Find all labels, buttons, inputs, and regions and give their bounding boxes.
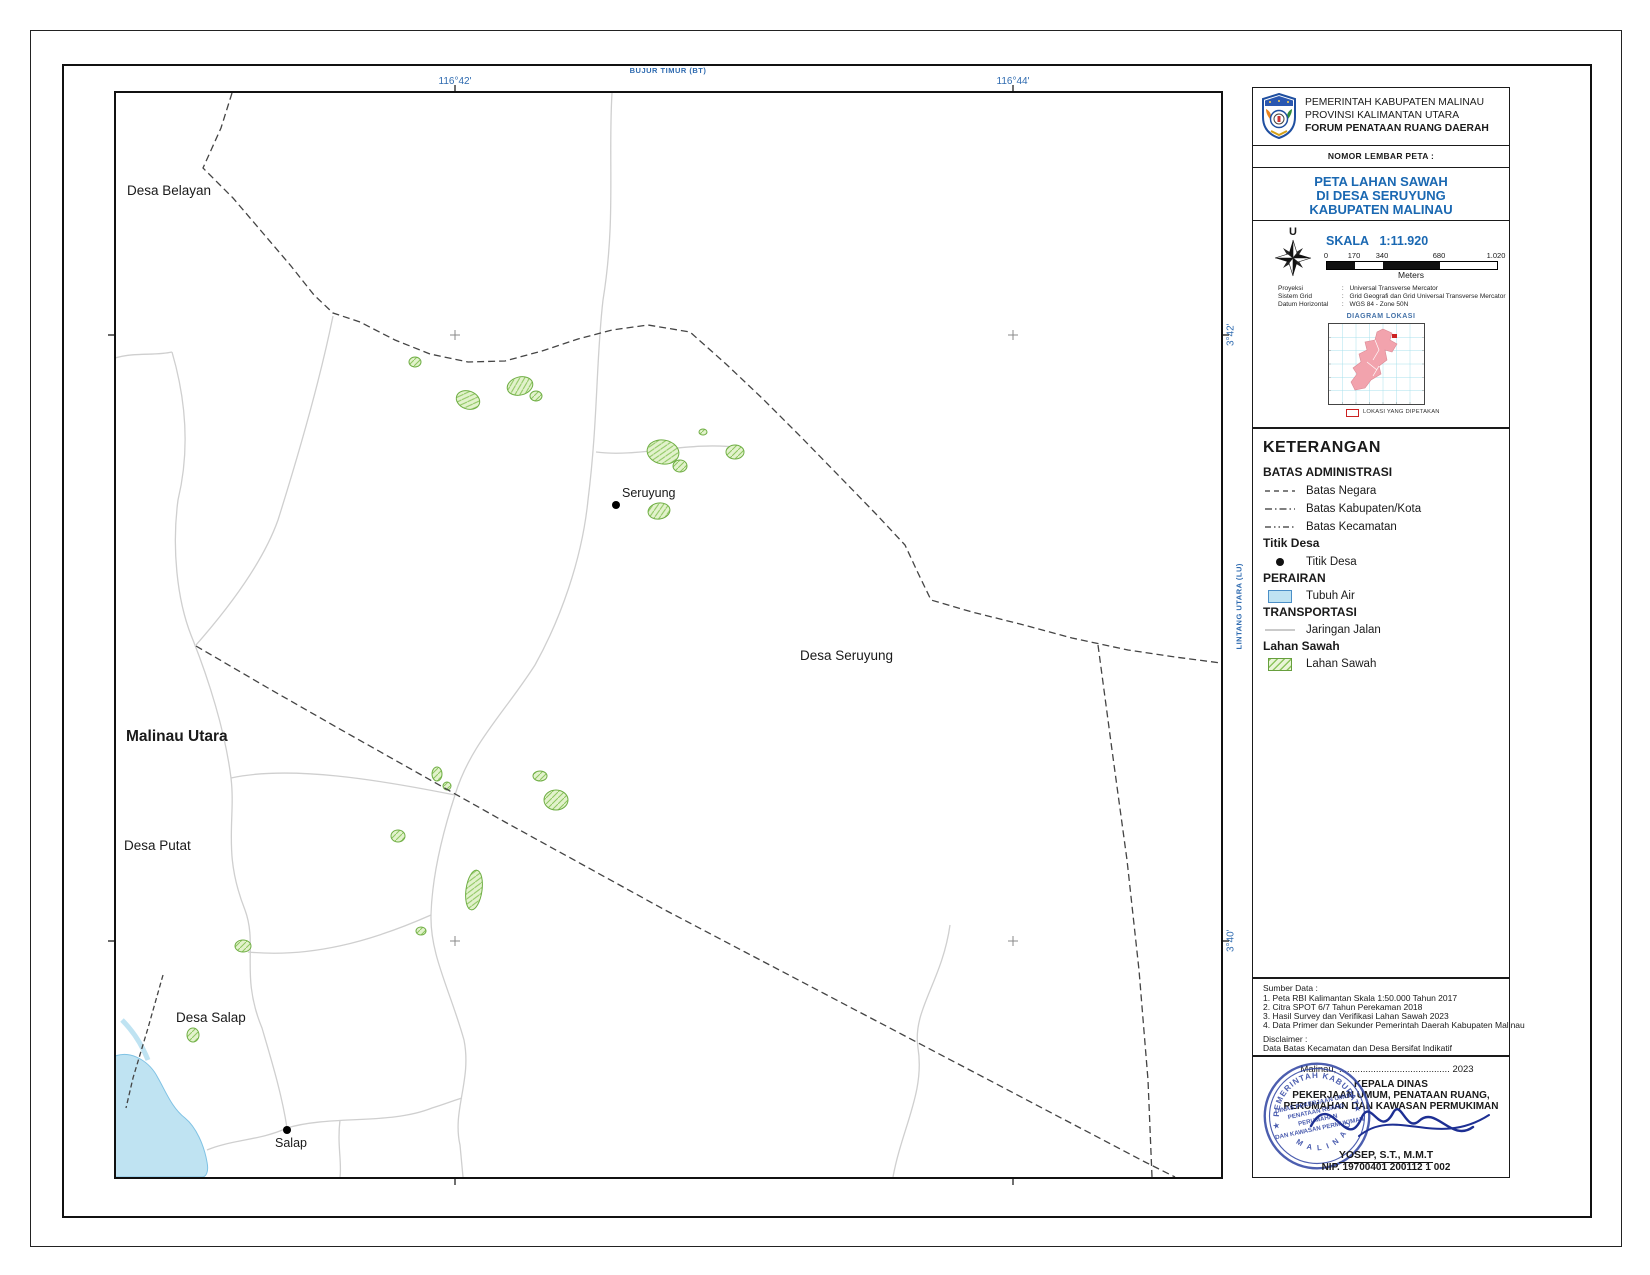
sources-box: Sumber Data : 1. Peta RBI Kalimantan Ska… — [1252, 978, 1510, 1056]
scalebar-tick-3: 680 — [1433, 252, 1446, 261]
legend-item-lahan-sawah: Lahan Sawah — [1263, 657, 1376, 671]
skala-label: SKALA — [1326, 234, 1369, 248]
projection-sep-1: : — [1342, 285, 1344, 292]
legend-title: KETERANGAN — [1263, 439, 1381, 457]
legend-label: Batas Kabupaten/Kota — [1306, 503, 1421, 515]
signature-box: Malinau, ...............................… — [1252, 1056, 1510, 1178]
lon-tick-1: 116°42' — [415, 76, 495, 88]
legend-transportasi-heading: TRANSPORTASI — [1263, 606, 1357, 620]
panel-header-box: PEMERINTAH KABUPATEN MALINAU PROVINSI KA… — [1252, 87, 1510, 146]
legend-item-batas-negara: Batas Negara — [1263, 484, 1376, 498]
map-label-malinau-utara: Malinau Utara — [126, 728, 228, 746]
projection-row-2: Sistem Grid : Grid Geografi dan Grid Uni… — [1278, 293, 1506, 300]
legend-item-jaringan-jalan: Jaringan Jalan — [1263, 623, 1381, 637]
inset-legend-swatch — [1346, 409, 1359, 417]
map-label-desa-seruyung: Desa Seruyung — [800, 648, 893, 664]
malinau-coat-of-arms — [1261, 93, 1297, 139]
inset-title: DIAGRAM LOKASI — [1311, 313, 1451, 321]
projection-value-1: Universal Transverse Mercator — [1345, 285, 1438, 292]
legend-box: KETERANGAN BATAS ADMINISTRASI Batas Nega… — [1252, 428, 1510, 978]
batas-negara-line-icon — [1263, 487, 1297, 495]
legend-label: Batas Negara — [1306, 485, 1376, 497]
legend-label: Batas Kecamatan — [1306, 521, 1397, 533]
inset-location-map — [1328, 323, 1425, 405]
scalebar-tick-1: 170 — [1348, 252, 1361, 261]
projection-label-2: Sistem Grid — [1278, 293, 1340, 300]
map-sheet: { "colors": { "title_blue": "#1a68b2", "… — [0, 0, 1650, 1275]
map-title-box: PETA LAHAN SAWAH DI DESA SERUYUNG KABUPA… — [1252, 167, 1510, 221]
agency-line-3: FORUM PENATAAN RUANG DAERAH — [1305, 123, 1489, 135]
scale-bar-seg-2 — [1355, 262, 1383, 269]
scalebar-tick-0: 0 — [1324, 252, 1328, 261]
agency-line-2: PROVINSI KALIMANTAN UTARA — [1305, 110, 1459, 122]
lat-tick-1: 3°42' — [1225, 315, 1237, 355]
sheet-number-box: NOMOR LEMBAR PETA : — [1252, 145, 1510, 168]
village-point-icon — [1263, 558, 1297, 566]
compass-rose-icon — [1273, 238, 1313, 278]
map-label-desa-putat: Desa Putat — [124, 838, 191, 854]
map-label-seruyung: Seruyung — [622, 486, 676, 500]
north-label: U — [1283, 226, 1303, 239]
sheet-number-label: NOMOR LEMBAR PETA : — [1253, 152, 1509, 162]
boundary-north — [203, 93, 1221, 663]
stamp-star-left: ★ — [1272, 1120, 1282, 1131]
batas-kecamatan-line-icon — [1263, 523, 1297, 531]
paddy-layer — [187, 357, 744, 1042]
map-label-desa-belayan: Desa Belayan — [127, 183, 211, 199]
legend-item-batas-kabupaten: Batas Kabupaten/Kota — [1263, 502, 1421, 516]
legend-item-batas-kecamatan: Batas Kecamatan — [1263, 520, 1397, 534]
scale-bar-seg-4 — [1440, 262, 1497, 269]
batas-kabupaten-line-icon — [1263, 505, 1297, 513]
projection-value-3: WGS 84 - Zone 50N — [1345, 301, 1408, 308]
projection-sep-3: : — [1342, 301, 1344, 308]
river-polygon — [115, 1054, 208, 1177]
legend-item-tubuh-air: Tubuh Air — [1263, 589, 1355, 603]
axis-right-label: LINTANG UTARA (LU) — [1236, 531, 1245, 681]
scale-bar-seg-3 — [1383, 262, 1440, 269]
projection-row-1: Proyeksi : Universal Transverse Mercator — [1278, 285, 1438, 292]
scalebar-tick-4: 1.020 — [1487, 252, 1506, 261]
map-title-line-3: KABUPATEN MALINAU — [1253, 203, 1509, 218]
village-points — [283, 501, 620, 1134]
projection-sep-2: : — [1342, 293, 1344, 300]
inset-highlight-marker — [1392, 334, 1397, 338]
legend-label: Titik Desa — [1306, 556, 1357, 568]
legend-perairan-heading: PERAIRAN — [1263, 572, 1326, 586]
scale-inset-box: U SKALA 1:11.920 0 170 340 680 1.020 Met… — [1252, 220, 1510, 428]
legend-lahan-sawah-heading: Lahan Sawah — [1263, 640, 1340, 654]
legend-label: Jaringan Jalan — [1306, 624, 1381, 636]
projection-value-2: Grid Geografi dan Grid Universal Transve… — [1345, 293, 1505, 300]
inset-region-shape — [1351, 329, 1397, 390]
signatory-nip: NIP. 19700401 200112 1 002 — [1286, 1162, 1486, 1174]
legend-admin-heading: BATAS ADMINISTRASI — [1263, 466, 1392, 480]
legend-titik-desa-heading: Titik Desa — [1263, 537, 1319, 551]
paddy-swatch-icon — [1263, 658, 1297, 671]
salap-point-marker — [283, 1126, 291, 1134]
scale-bar — [1326, 261, 1498, 270]
lon-tick-2: 116°44' — [973, 76, 1053, 88]
legend-item-titik-desa: Titik Desa — [1263, 555, 1357, 569]
water-layer — [115, 1020, 208, 1177]
scale-unit: Meters — [1376, 271, 1446, 281]
agency-line-1: PEMERINTAH KABUPATEN MALINAU — [1305, 97, 1484, 109]
scale-bar-seg-1 — [1327, 262, 1355, 269]
skala-value: 1:11.920 — [1379, 234, 1428, 248]
projection-label-3: Datum Horizontal — [1278, 301, 1340, 308]
scalebar-tick-2: 340 — [1376, 252, 1389, 261]
boundaries-layer — [126, 93, 1221, 1177]
lat-tick-2: 3°40' — [1225, 921, 1237, 961]
scale-text: SKALA 1:11.920 — [1326, 234, 1428, 248]
graticule-crosses — [450, 330, 1018, 946]
signatory-name: YOSEP, S.T., M.M.T — [1286, 1149, 1486, 1161]
legend-label: Lahan Sawah — [1306, 658, 1376, 670]
axis-top-label: BUJUR TIMUR (BT) — [568, 67, 768, 76]
boundary-diagonal — [196, 646, 1175, 1177]
projection-label-1: Proyeksi — [1278, 285, 1340, 292]
projection-row-3: Datum Horizontal : WGS 84 - Zone 50N — [1278, 301, 1408, 308]
water-swatch-icon — [1263, 590, 1297, 603]
road-line-icon — [1263, 626, 1297, 634]
map-frame — [115, 92, 1222, 1178]
seruyung-point-marker — [612, 501, 620, 509]
legend-label: Tubuh Air — [1306, 590, 1355, 602]
inset-legend-label: LOKASI YANG DIPETAKAN — [1363, 409, 1440, 416]
source-item-4: 4. Data Primer dan Sekunder Pemerintah D… — [1263, 1021, 1525, 1031]
map-label-desa-salap: Desa Salap — [176, 1010, 246, 1026]
boundary-east — [1098, 645, 1152, 1177]
map-label-salap: Salap — [275, 1136, 307, 1150]
